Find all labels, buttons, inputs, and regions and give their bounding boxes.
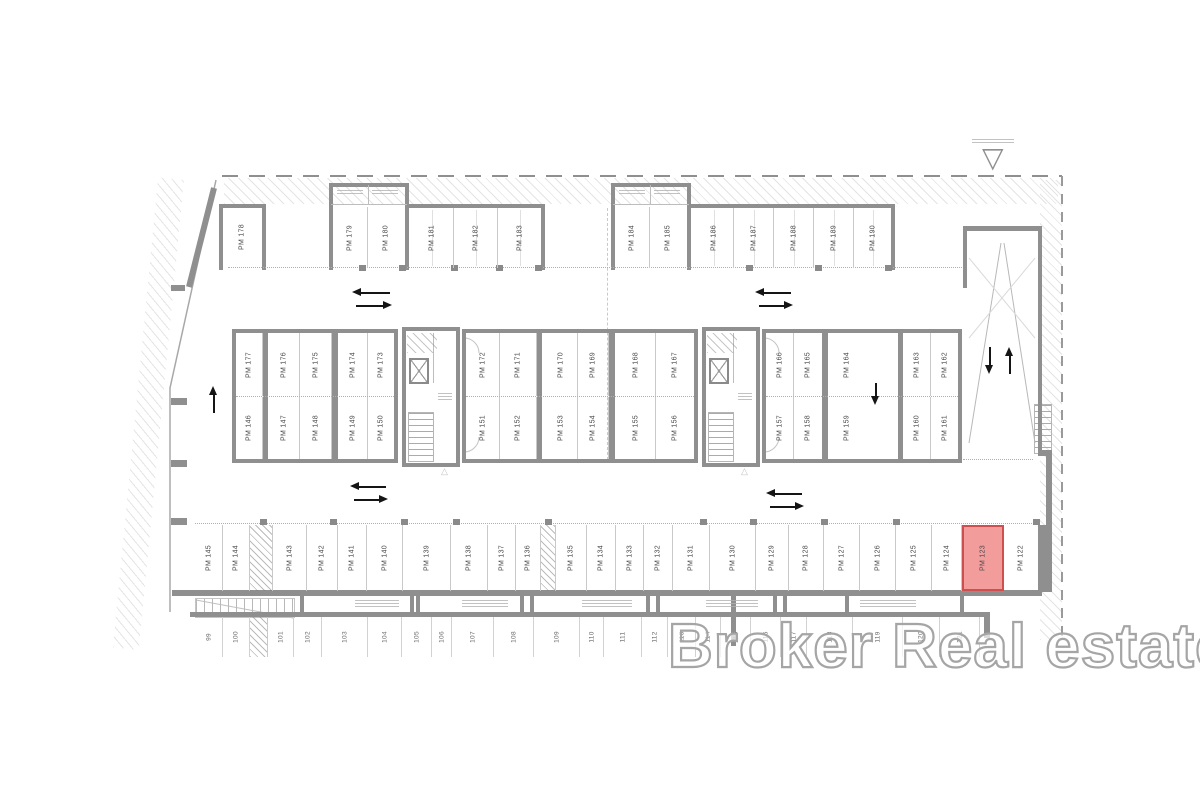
stairs: [708, 412, 734, 462]
traffic-arrow-right: [759, 301, 793, 310]
parking-space-label: 108: [510, 631, 517, 643]
parking-space: PM 179: [333, 207, 368, 268]
parking-space-label: PM 164: [843, 352, 850, 378]
wall: [1038, 226, 1042, 450]
parking-space: 110: [580, 617, 604, 657]
parking-space-label: PM 136: [525, 545, 532, 571]
parking-space: PM 157: [766, 397, 794, 459]
thin-line: [650, 185, 651, 204]
door-marker-icon: △: [741, 467, 748, 476]
parking-space-label: 112: [651, 631, 658, 642]
parking-space: PM 164: [830, 333, 863, 396]
parking-space: PM 144: [223, 525, 250, 591]
parking-space-label: PM 130: [729, 545, 736, 571]
wall: [687, 183, 691, 270]
wall: [1046, 456, 1052, 592]
parking-space-label: PM 172: [479, 352, 486, 378]
parking-space-label: PM 175: [312, 352, 319, 378]
parking-space-label: PM 177: [246, 352, 253, 378]
parking-space: PM 163: [903, 333, 931, 396]
traffic-arrow-left: [755, 288, 791, 297]
parking-space: PM 152: [500, 397, 537, 459]
wall: [300, 596, 304, 614]
wall: [541, 204, 545, 270]
parking-space-label: PM 129: [769, 545, 776, 571]
entrance-marker-icon: ▽: [982, 144, 1004, 172]
parking-space: PM 160: [903, 397, 931, 459]
parking-space: PM 168: [617, 333, 656, 396]
parking-space-label: 111: [619, 632, 626, 643]
parking-space: 99: [195, 617, 223, 657]
thin-line: [613, 204, 689, 205]
parking-space-label: PM 150: [378, 415, 385, 441]
wall: [963, 226, 1042, 231]
parking-space: 101: [268, 617, 294, 657]
thin-line: [331, 204, 407, 205]
parking-space-label: PM 145: [205, 545, 212, 571]
parking-space-label: PM 190: [869, 225, 876, 251]
wall: [611, 183, 691, 187]
parking-space: PM 155: [617, 397, 656, 459]
parking-space: PM 158: [794, 397, 822, 459]
parking-bay-mid-up-ra: PM 166PM 165: [766, 333, 822, 396]
parking-space-label: PM 152: [515, 415, 522, 441]
hatched-area: [250, 525, 273, 591]
parking-space-label: PM 184: [629, 225, 636, 251]
parking-bay-top-c: PM 181PM 182PM 183: [410, 208, 541, 268]
parking-space: PM 140: [367, 525, 403, 591]
parking-space-label: PM 170: [558, 352, 565, 378]
tiny-text: [619, 188, 645, 194]
parking-space-label: 107: [469, 631, 476, 643]
parking-space-label: PM 155: [633, 415, 640, 441]
parking-space: PM 149: [338, 397, 368, 459]
parking-space: PM 170: [545, 333, 578, 396]
parking-space: PM 178: [221, 206, 262, 268]
parking-space-label: PM 185: [665, 225, 672, 251]
parking-space-label: 99: [205, 633, 212, 641]
parking-space-label: PM 154: [590, 415, 597, 441]
parking-space-label: 110: [588, 631, 595, 642]
angled-wall: [189, 188, 214, 287]
parking-space-label: PM 122: [1018, 545, 1025, 571]
parking-space: PM 167: [656, 333, 694, 396]
parking-space: PM 125: [896, 525, 932, 591]
parking-space: PM 151: [466, 397, 500, 459]
parking-space: PM 131: [673, 525, 710, 591]
parking-space: PM 137: [488, 525, 516, 591]
parking-space-label: 106: [438, 631, 445, 643]
parking-space: 105: [402, 617, 432, 657]
parking-bay-mid-up-c: PM 172PM 171PM 170PM 169PM 168PM 167: [466, 333, 694, 396]
parking-space-label: PM 138: [466, 545, 473, 571]
parking-space: PM 127: [824, 525, 860, 591]
stairs: [408, 412, 434, 462]
parking-space: 108: [494, 617, 534, 657]
parking-bay-mid-lo-rb: PM 159: [830, 397, 863, 459]
parking-space: PM 128: [789, 525, 824, 591]
parking-space: PM 174: [338, 333, 368, 396]
parking-space: PM 183: [498, 208, 541, 268]
parking-space-label: PM 125: [910, 545, 917, 571]
wall: [646, 596, 650, 614]
parking-space-label: PM 158: [805, 415, 812, 441]
parking-space: PM 161: [931, 397, 958, 459]
parking-space: PM 146: [236, 397, 263, 459]
parking-space: PM 122: [1004, 525, 1038, 591]
floor-plan: ▽ △ △ Broker Real estate PM 178PM 179PM …: [0, 0, 1200, 800]
parking-bay-mid-lo-ra: PM 157PM 158: [766, 397, 822, 459]
parking-space-label: PM 167: [672, 352, 679, 378]
tiny-text: [337, 188, 363, 194]
parking-space-label: PM 171: [515, 352, 522, 378]
parking-bay-mid-lo-l: PM 146PM 147PM 148PM 149PM 150: [236, 397, 394, 459]
parking-space: PM 136: [516, 525, 541, 591]
wall: [1038, 525, 1046, 592]
parking-space-label: PM 149: [349, 415, 356, 441]
wall: [171, 398, 187, 405]
tiny-text: [372, 188, 398, 194]
parking-bay-bottom: PM 145PM 144PM 143PM 142PM 141PM 140PM 1…: [195, 525, 1038, 591]
wall: [656, 596, 660, 614]
parking-space-label: PM 147: [280, 415, 287, 441]
traffic-arrow-down: [871, 383, 880, 405]
parking-bay-top-d: PM 184PM 185: [615, 207, 686, 268]
parking-space-label: PM 128: [803, 545, 810, 571]
parking-space-label: PM 163: [913, 352, 920, 378]
parking-space-label: PM 160: [913, 415, 920, 441]
parking-space-label: PM 148: [312, 415, 319, 441]
traffic-arrow-right: [770, 502, 804, 511]
parking-space: PM 184: [615, 207, 650, 268]
parking-space: PM 189: [814, 208, 854, 268]
hatched-area: [250, 617, 268, 657]
wall: [963, 226, 967, 288]
parking-space-label: PM 162: [941, 352, 948, 378]
parking-space-label: PM 146: [246, 415, 253, 441]
parking-bay-mid-up-rc: PM 163PM 162: [903, 333, 958, 396]
parking-space: 111: [604, 617, 642, 657]
parking-space: PM 190: [854, 208, 891, 268]
traffic-arrow-left: [766, 489, 802, 498]
thin-line: [368, 185, 369, 204]
wall: [694, 329, 698, 463]
parking-space: PM 135: [556, 525, 587, 591]
parking-space-label: PM 137: [498, 545, 505, 571]
parking-space: PM 124: [932, 525, 962, 591]
parking-space-label: PM 169: [590, 352, 597, 378]
tiny-text: [860, 600, 916, 607]
parking-space: PM 188: [774, 208, 814, 268]
parking-space-highlighted[interactable]: PM 123: [962, 525, 1004, 591]
traffic-arrow-left: [352, 288, 390, 297]
parking-space-label: PM 139: [423, 545, 430, 571]
entrance-tiny-text: [972, 139, 1014, 143]
parking-space-label: PM 134: [598, 545, 605, 571]
wall-gap: [537, 333, 545, 396]
parking-space: PM 148: [300, 397, 332, 459]
parking-space: 107: [452, 617, 494, 657]
parking-bay-top-b: PM 179PM 180: [333, 207, 404, 268]
wall: [762, 459, 962, 463]
wall-gap: [609, 333, 617, 396]
parking-space: PM 180: [368, 207, 404, 268]
parking-space: PM 132: [644, 525, 673, 591]
parking-space: PM 126: [860, 525, 896, 591]
tiny-text: [654, 188, 680, 194]
parking-space: 102: [294, 617, 322, 657]
parking-space-label: PM 157: [776, 415, 783, 441]
parking-space: PM 171: [500, 333, 537, 396]
parking-space: PM 147: [268, 397, 300, 459]
dotted-line: [963, 459, 1033, 460]
parking-space-label: PM 142: [319, 545, 326, 571]
parking-space-label: PM 188: [790, 225, 797, 251]
parking-space-label: PM 124: [943, 545, 950, 571]
parking-space: PM 150: [368, 397, 394, 459]
parking-space-label: PM 143: [286, 545, 293, 571]
parking-space-label: PM 180: [383, 225, 390, 251]
parking-space-label: PM 176: [280, 352, 287, 378]
tiny-text: [355, 600, 399, 607]
parking-space: PM 143: [273, 525, 307, 591]
parking-space: PM 145: [195, 525, 223, 591]
traffic-arrow-up: [1005, 347, 1014, 374]
elevator: [409, 358, 429, 384]
parking-space-label: 104: [381, 631, 388, 643]
parking-space-label: PM 159: [843, 415, 850, 441]
parking-bay-top-e: PM 186PM 187PM 188PM 189PM 190: [694, 208, 891, 268]
wall-gap: [537, 397, 545, 459]
traffic-arrow-left: [350, 482, 386, 491]
parking-space: PM 176: [268, 333, 300, 396]
traffic-arrow-right: [354, 495, 388, 504]
wall: [410, 596, 414, 614]
parking-space-label: PM 141: [349, 545, 356, 571]
ramp-edge-lines: [969, 243, 1035, 443]
parking-space: PM 138: [451, 525, 488, 591]
parking-space-label: PM 174: [349, 352, 356, 378]
wall: [845, 596, 849, 612]
wall: [960, 596, 964, 612]
tiny-text: [462, 600, 508, 607]
parking-space: PM 141: [338, 525, 367, 591]
wall: [530, 596, 534, 614]
parking-space: PM 181: [410, 208, 454, 268]
parking-space: PM 130: [710, 525, 756, 591]
parking-space: PM 139: [403, 525, 451, 591]
parking-space-label: 100: [233, 631, 240, 643]
parking-space-label: PM 127: [838, 545, 845, 571]
wall: [405, 183, 409, 270]
wall: [891, 204, 895, 270]
parking-space-label: PM 178: [238, 224, 245, 250]
parking-space-label: PM 140: [381, 545, 388, 571]
watermark: Broker Real estate: [668, 611, 1200, 682]
parking-space-label: PM 165: [805, 352, 812, 378]
parking-space: 106: [432, 617, 452, 657]
traffic-arrow-down: [985, 347, 994, 374]
parking-space: PM 133: [616, 525, 644, 591]
wall: [171, 518, 187, 525]
wall: [416, 596, 420, 614]
parking-space-label: PM 189: [830, 225, 837, 251]
parking-space-label: PM 179: [347, 225, 354, 251]
dotted-line: [195, 523, 1038, 524]
core-hatch: [707, 333, 737, 353]
parking-space: 104: [368, 617, 402, 657]
parking-space: PM 134: [587, 525, 616, 591]
wall: [171, 460, 187, 467]
parking-space-label: PM 168: [633, 352, 640, 378]
parking-space-label: PM 161: [941, 415, 948, 441]
parking-space-label: PM 133: [626, 545, 633, 571]
parking-bay-top-a: PM 178: [221, 206, 262, 268]
parking-space-label: PM 151: [479, 415, 486, 441]
parking-space-label: 101: [277, 631, 284, 643]
parking-space: PM 175: [300, 333, 332, 396]
parking-space-label: PM 183: [516, 225, 523, 251]
parking-bay-mid-lo-c: PM 151PM 152PM 153PM 154PM 155PM 156: [466, 397, 694, 459]
traffic-arrow-up: [209, 386, 218, 413]
parking-space: PM 173: [368, 333, 394, 396]
parking-space: PM 142: [307, 525, 338, 591]
parking-space: 112: [642, 617, 668, 657]
wall: [958, 329, 962, 463]
parking-space: 100: [223, 617, 250, 657]
parking-space: PM 156: [656, 397, 694, 459]
parking-space-label: PM 182: [472, 225, 479, 251]
traffic-arrow-right: [356, 301, 392, 310]
wall: [394, 329, 398, 463]
parking-space: PM 162: [931, 333, 958, 396]
parking-bay-mid-up-rb: PM 164: [830, 333, 863, 396]
parking-space: PM 187: [734, 208, 774, 268]
parking-bay-mid-up-l: PM 177PM 176PM 175PM 174PM 173: [236, 333, 394, 396]
hatched-area: [541, 525, 556, 591]
parking-space: PM 159: [830, 397, 863, 459]
parking-space-label: 109: [553, 631, 560, 643]
core-hatch: [407, 333, 437, 353]
elevator: [709, 358, 729, 384]
parking-space: PM 154: [578, 397, 609, 459]
parking-space: PM 153: [545, 397, 578, 459]
parking-space-label: PM 126: [874, 545, 881, 571]
parking-space: PM 185: [650, 207, 686, 268]
tiny-text: [438, 392, 452, 400]
parking-space-label: PM 132: [655, 545, 662, 571]
parking-space: PM 129: [756, 525, 789, 591]
parking-space-label: PM 186: [710, 225, 717, 251]
parking-space: 109: [534, 617, 580, 657]
tiny-text: [706, 600, 758, 607]
parking-space: PM 172: [466, 333, 500, 396]
wall: [462, 459, 698, 463]
wall-gap: [609, 397, 617, 459]
parking-space-label: PM 156: [672, 415, 679, 441]
parking-space-label: PM 135: [568, 545, 575, 571]
wall: [262, 204, 266, 270]
wall: [232, 459, 398, 463]
parking-space: PM 186: [694, 208, 734, 268]
parking-space: 103: [322, 617, 368, 657]
ramp-cross-lines: [969, 258, 1035, 338]
parking-space-label: PM 131: [688, 545, 695, 571]
parking-space: PM 166: [766, 333, 794, 396]
tiny-text: [738, 392, 752, 400]
parking-space-label: 102: [304, 631, 311, 643]
parking-space-label: PM 181: [428, 225, 435, 251]
parking-space-label: PM 153: [558, 415, 565, 441]
parking-space: PM 165: [794, 333, 822, 396]
parking-space-label: 103: [341, 631, 348, 643]
wall: [171, 285, 185, 291]
parking-space-label: PM 123: [980, 545, 987, 571]
door-marker-icon: △: [441, 467, 448, 476]
parking-space: PM 177: [236, 333, 263, 396]
wall: [520, 596, 524, 614]
tiny-text: [582, 600, 632, 607]
stairs-right-edge: [1034, 404, 1052, 454]
parking-space-label: PM 173: [378, 352, 385, 378]
wall: [329, 183, 409, 187]
parking-bay-mid-lo-rc: PM 160PM 161: [903, 397, 958, 459]
parking-space-label: PM 187: [750, 225, 757, 251]
parking-space: PM 182: [454, 208, 498, 268]
parking-space-label: PM 166: [776, 352, 783, 378]
parking-space-label: PM 144: [233, 545, 240, 571]
parking-space-label: 105: [413, 631, 420, 643]
parking-space: PM 169: [578, 333, 609, 396]
